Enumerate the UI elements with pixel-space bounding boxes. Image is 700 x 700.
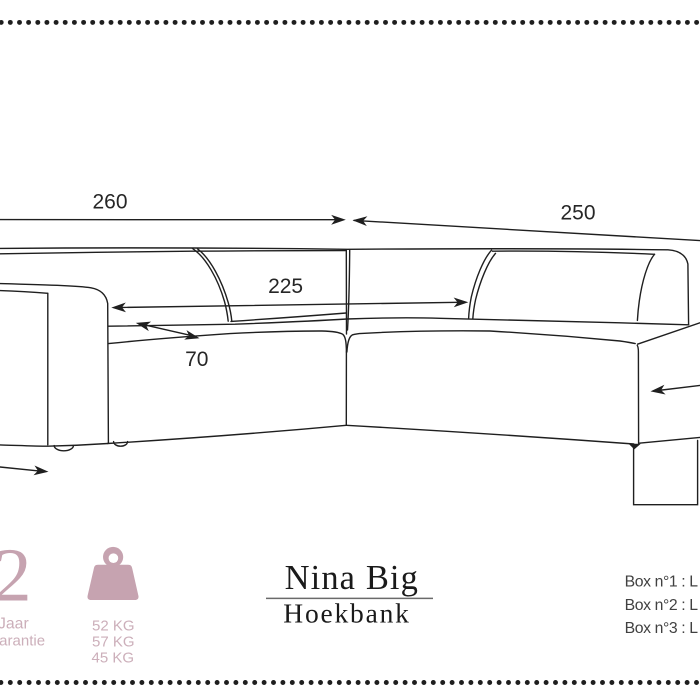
svg-text:Garantie: Garantie xyxy=(0,632,45,649)
svg-text:45 KG: 45 KG xyxy=(92,649,135,666)
svg-text:250: 250 xyxy=(560,202,595,225)
svg-text:Jaar: Jaar xyxy=(0,616,29,633)
svg-text:225: 225 xyxy=(268,275,303,298)
svg-text:52 KG: 52 KG xyxy=(92,617,135,634)
svg-text:Hoekbank: Hoekbank xyxy=(283,597,410,628)
svg-text:Box n°2 : L 17: Box n°2 : L 17 xyxy=(625,597,700,614)
svg-text:Box n°3 : L 17: Box n°3 : L 17 xyxy=(625,620,700,637)
svg-text:2: 2 xyxy=(0,534,32,618)
svg-text:Box n°1 : L 17: Box n°1 : L 17 xyxy=(625,574,700,591)
svg-text:Nina Big: Nina Big xyxy=(285,559,419,597)
svg-text:260: 260 xyxy=(92,191,127,214)
svg-text:70: 70 xyxy=(185,348,208,371)
svg-text:57 KG: 57 KG xyxy=(92,633,135,650)
